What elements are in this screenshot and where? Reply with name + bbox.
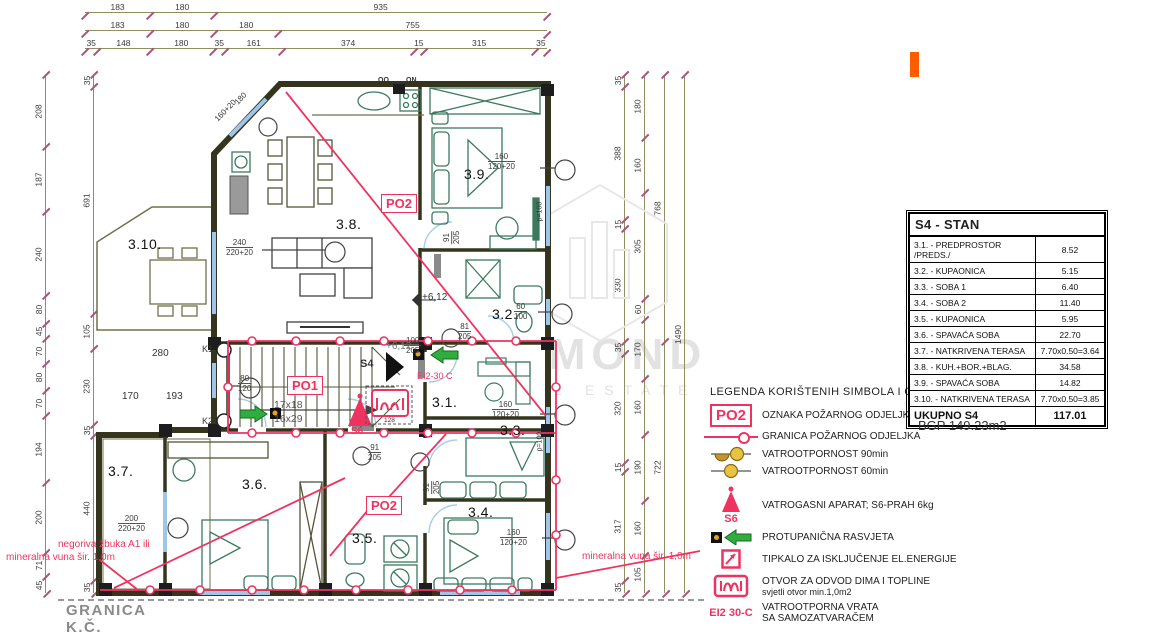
- fire-compartment-icon: PO2: [710, 404, 752, 427]
- window-label-200: 200220+20: [118, 514, 145, 533]
- dim-170: 170: [122, 391, 139, 402]
- table-row: 3.1. - PREDPROSTOR /PREDS./8.52: [909, 236, 1105, 263]
- orange-marker: [910, 52, 919, 77]
- po2-box-bottom: PO2: [366, 496, 402, 515]
- area-table-body: 3.1. - PREDPROSTOR /PREDS./8.523.2. - KU…: [909, 236, 1105, 407]
- po1-box: PO1: [287, 376, 323, 395]
- mark-k2: K2: [202, 416, 213, 426]
- level-mark-1: +6,12: [422, 292, 447, 303]
- mark-p100b: p=100: [536, 432, 543, 452]
- room-label-3-4: 3.4.: [468, 504, 493, 520]
- door-label-91b: 91205: [422, 481, 441, 494]
- legend-item-panic: PROTUPANIČNA RASVJETA: [700, 529, 975, 545]
- area-table: S4 - STAN 3.1. - PREDPROSTOR /PREDS./8.5…: [908, 212, 1106, 427]
- emergency-light-icon: [709, 529, 753, 545]
- room-label-3-5: 3.5.: [352, 530, 377, 546]
- mark-p100a: p=100: [536, 202, 543, 222]
- room-label-3-9: 3.9.: [464, 166, 489, 182]
- bgp-label: BGP 149.23m2: [918, 418, 1007, 433]
- power-cutoff-button-icon: [721, 549, 741, 569]
- table-row: 3.6. - SPAVAĆA SOBA22.70: [909, 327, 1105, 343]
- room-label-3-3: 3.3.: [500, 422, 525, 438]
- door-label-81: 81205: [458, 322, 471, 341]
- fire-resistance-60-icon: [711, 463, 751, 479]
- stair-note-1: 17x18: [274, 399, 303, 411]
- legend-item-fire90: VATROOTPORNOST 90min: [700, 446, 975, 462]
- table-row: 3.3. - SOBA 16.40: [909, 279, 1105, 295]
- legend-item-vent: OTVOR ZA ODVOD DIMA I TOPLINE svjetli ot…: [700, 574, 975, 598]
- mark-on: ON: [406, 77, 417, 84]
- fire-resistance-90-icon: [711, 446, 751, 462]
- table-row: 3.2. - KUPAONICA5.15: [909, 263, 1105, 279]
- table-row: 3.5. - KUPAONICA5.95: [909, 311, 1105, 327]
- room-label-3-8: 3.8.: [336, 216, 361, 232]
- area-table-title: S4 - STAN: [909, 213, 1105, 236]
- room-label-3-6: 3.6.: [242, 476, 267, 492]
- table-row: 3.9. - SPAVAĆA SOBA14.82: [909, 375, 1105, 391]
- window-label-60: 60100: [514, 302, 527, 321]
- window-label-240: 240220+20: [226, 238, 253, 257]
- room-label-3-10: 3.10.: [128, 236, 162, 252]
- table-row: 3.10. - NATKRIVENA TERASA7.70x0.50=3.85: [909, 391, 1105, 407]
- po2-box-top: PO2: [381, 194, 417, 213]
- door-label-91c: 91205: [442, 231, 461, 244]
- legend-item-s6: S6 VATROGASNI APARAT; S6-PRAH 6kg: [700, 485, 975, 525]
- s6-label: S6: [351, 426, 363, 437]
- ei-door-label: EI2-30 C: [417, 371, 453, 381]
- level-mark-2: +6,12: [386, 341, 411, 352]
- legend-item-firedoor: EI2 30-C VATROOTPORNA VRATA SA SAMOZATVA…: [700, 602, 975, 624]
- table-row: 3.8. - KUH.+BOR.+BLAG.34.58: [909, 359, 1105, 375]
- fire-extinguisher-icon: [718, 485, 744, 513]
- smoke-vent-icon: [713, 574, 749, 598]
- window-label-160c: 160120+20: [500, 528, 527, 547]
- dim-280: 280: [152, 348, 169, 359]
- room-label-3-1: 3.1.: [432, 394, 457, 410]
- window-label-160b: 160120+20: [492, 400, 519, 419]
- mark-128: 128: [384, 417, 395, 424]
- fire-door-rating-icon: EI2 30-C: [709, 607, 752, 619]
- mark-s4: S4: [360, 358, 373, 370]
- mark-k1: K1: [202, 344, 213, 354]
- door-label-91a: 91205: [368, 443, 381, 462]
- room-label-3-7: 3.7.: [108, 463, 133, 479]
- table-row: 3.4. - SOBA 211.40: [909, 295, 1105, 311]
- table-row: 3.7. - NATKRIVENA TERASA7.70x0.50=3.64: [909, 343, 1105, 359]
- legend-item-switch: TIPKALO ZA ISKLJUČENJE EL.ENERGIJE: [700, 549, 975, 569]
- legend-item-fire60: VATROOTPORNOST 60min: [700, 463, 975, 479]
- floorplan-page: { "dims": { "top": [ ["183","180","935"]…: [0, 0, 1175, 613]
- note-mineralna: mineralna vuna šir. 1,0m: [582, 551, 691, 562]
- stair-note-2: 16x29: [274, 413, 303, 425]
- note-negoriva-2: mineralna vuna šir. 1,0m: [6, 552, 115, 563]
- window-label-80: 80120: [238, 374, 251, 393]
- dim-193: 193: [166, 391, 183, 402]
- window-label-160a: 160120+20: [488, 152, 515, 171]
- note-negoriva-1: negoriva žbuka A1 ili: [58, 539, 150, 550]
- parcel-boundary-label: GRANICA K.Č.: [66, 602, 146, 636]
- fire-boundary-line-icon: [704, 432, 758, 442]
- mark-oo: OO: [378, 77, 389, 84]
